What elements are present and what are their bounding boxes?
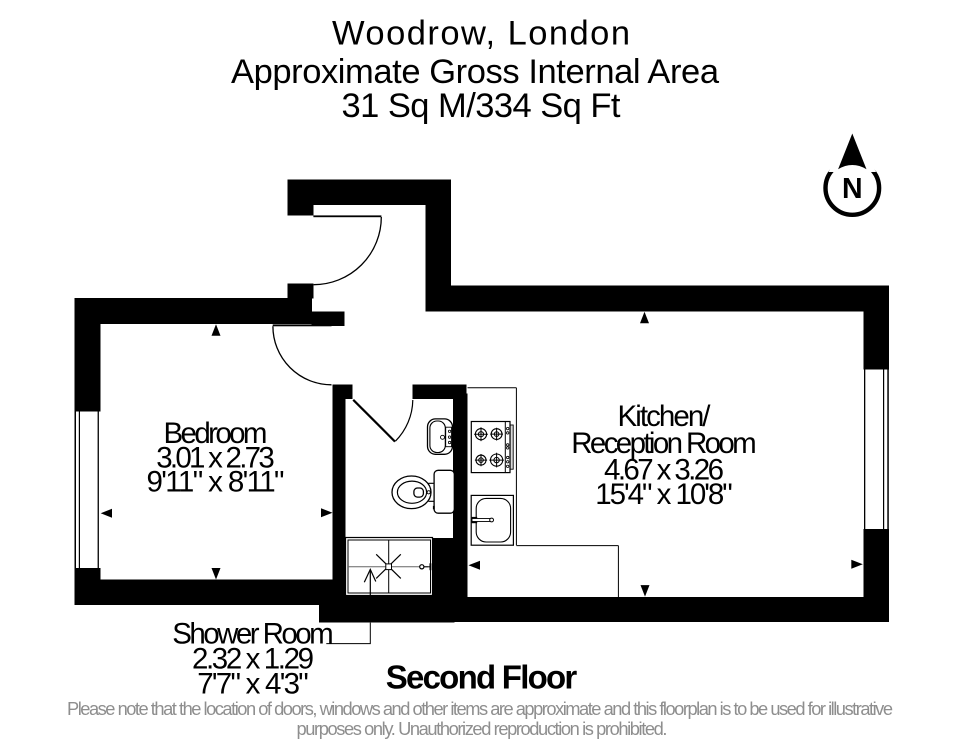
svg-text:Please note that the location: Please note that the location of doors, … (67, 698, 893, 719)
svg-text:purposes only. Unauthorized re: purposes only. Unauthorized reproduction… (297, 718, 668, 739)
svg-text:15'4" x 10'8": 15'4" x 10'8" (595, 478, 733, 511)
svg-text:Woodrow, London: Woodrow, London (332, 15, 630, 53)
svg-text:9'11" x 8'11": 9'11" x 8'11" (147, 465, 285, 498)
svg-text:N: N (842, 173, 863, 205)
svg-text:7'7" x 4'3": 7'7" x 4'3" (197, 667, 309, 700)
svg-text:31 Sq M/334 Sq Ft: 31 Sq M/334 Sq Ft (342, 87, 621, 125)
svg-text:Approximate Gross Internal Are: Approximate Gross Internal Area (231, 53, 720, 91)
svg-text:Second Floor: Second Floor (386, 659, 578, 696)
